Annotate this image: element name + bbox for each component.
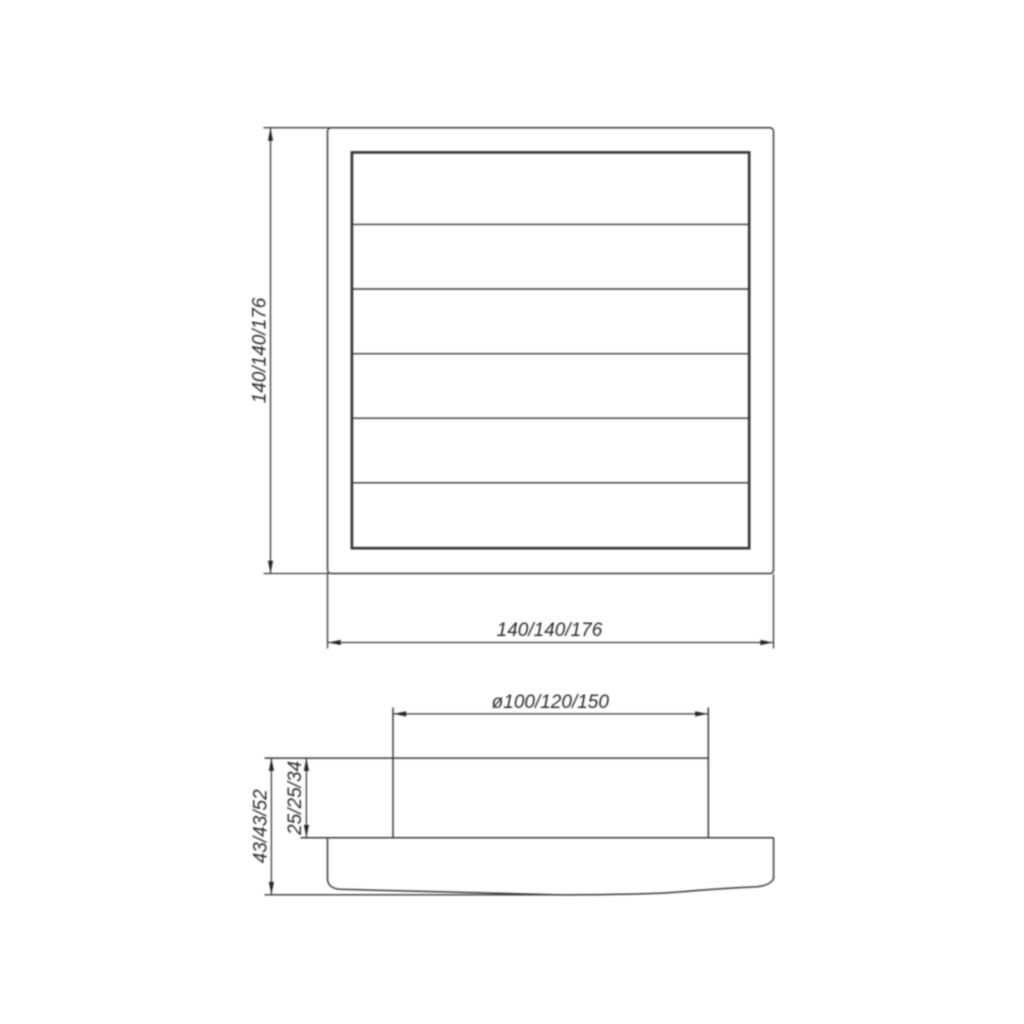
- svg-text:ø100/120/150: ø100/120/150: [492, 692, 610, 713]
- svg-text:43/43/52: 43/43/52: [251, 789, 272, 863]
- svg-text:140/140/176: 140/140/176: [497, 620, 603, 641]
- svg-text:25/25/34: 25/25/34: [285, 761, 306, 836]
- svg-text:140/140/176: 140/140/176: [250, 297, 271, 403]
